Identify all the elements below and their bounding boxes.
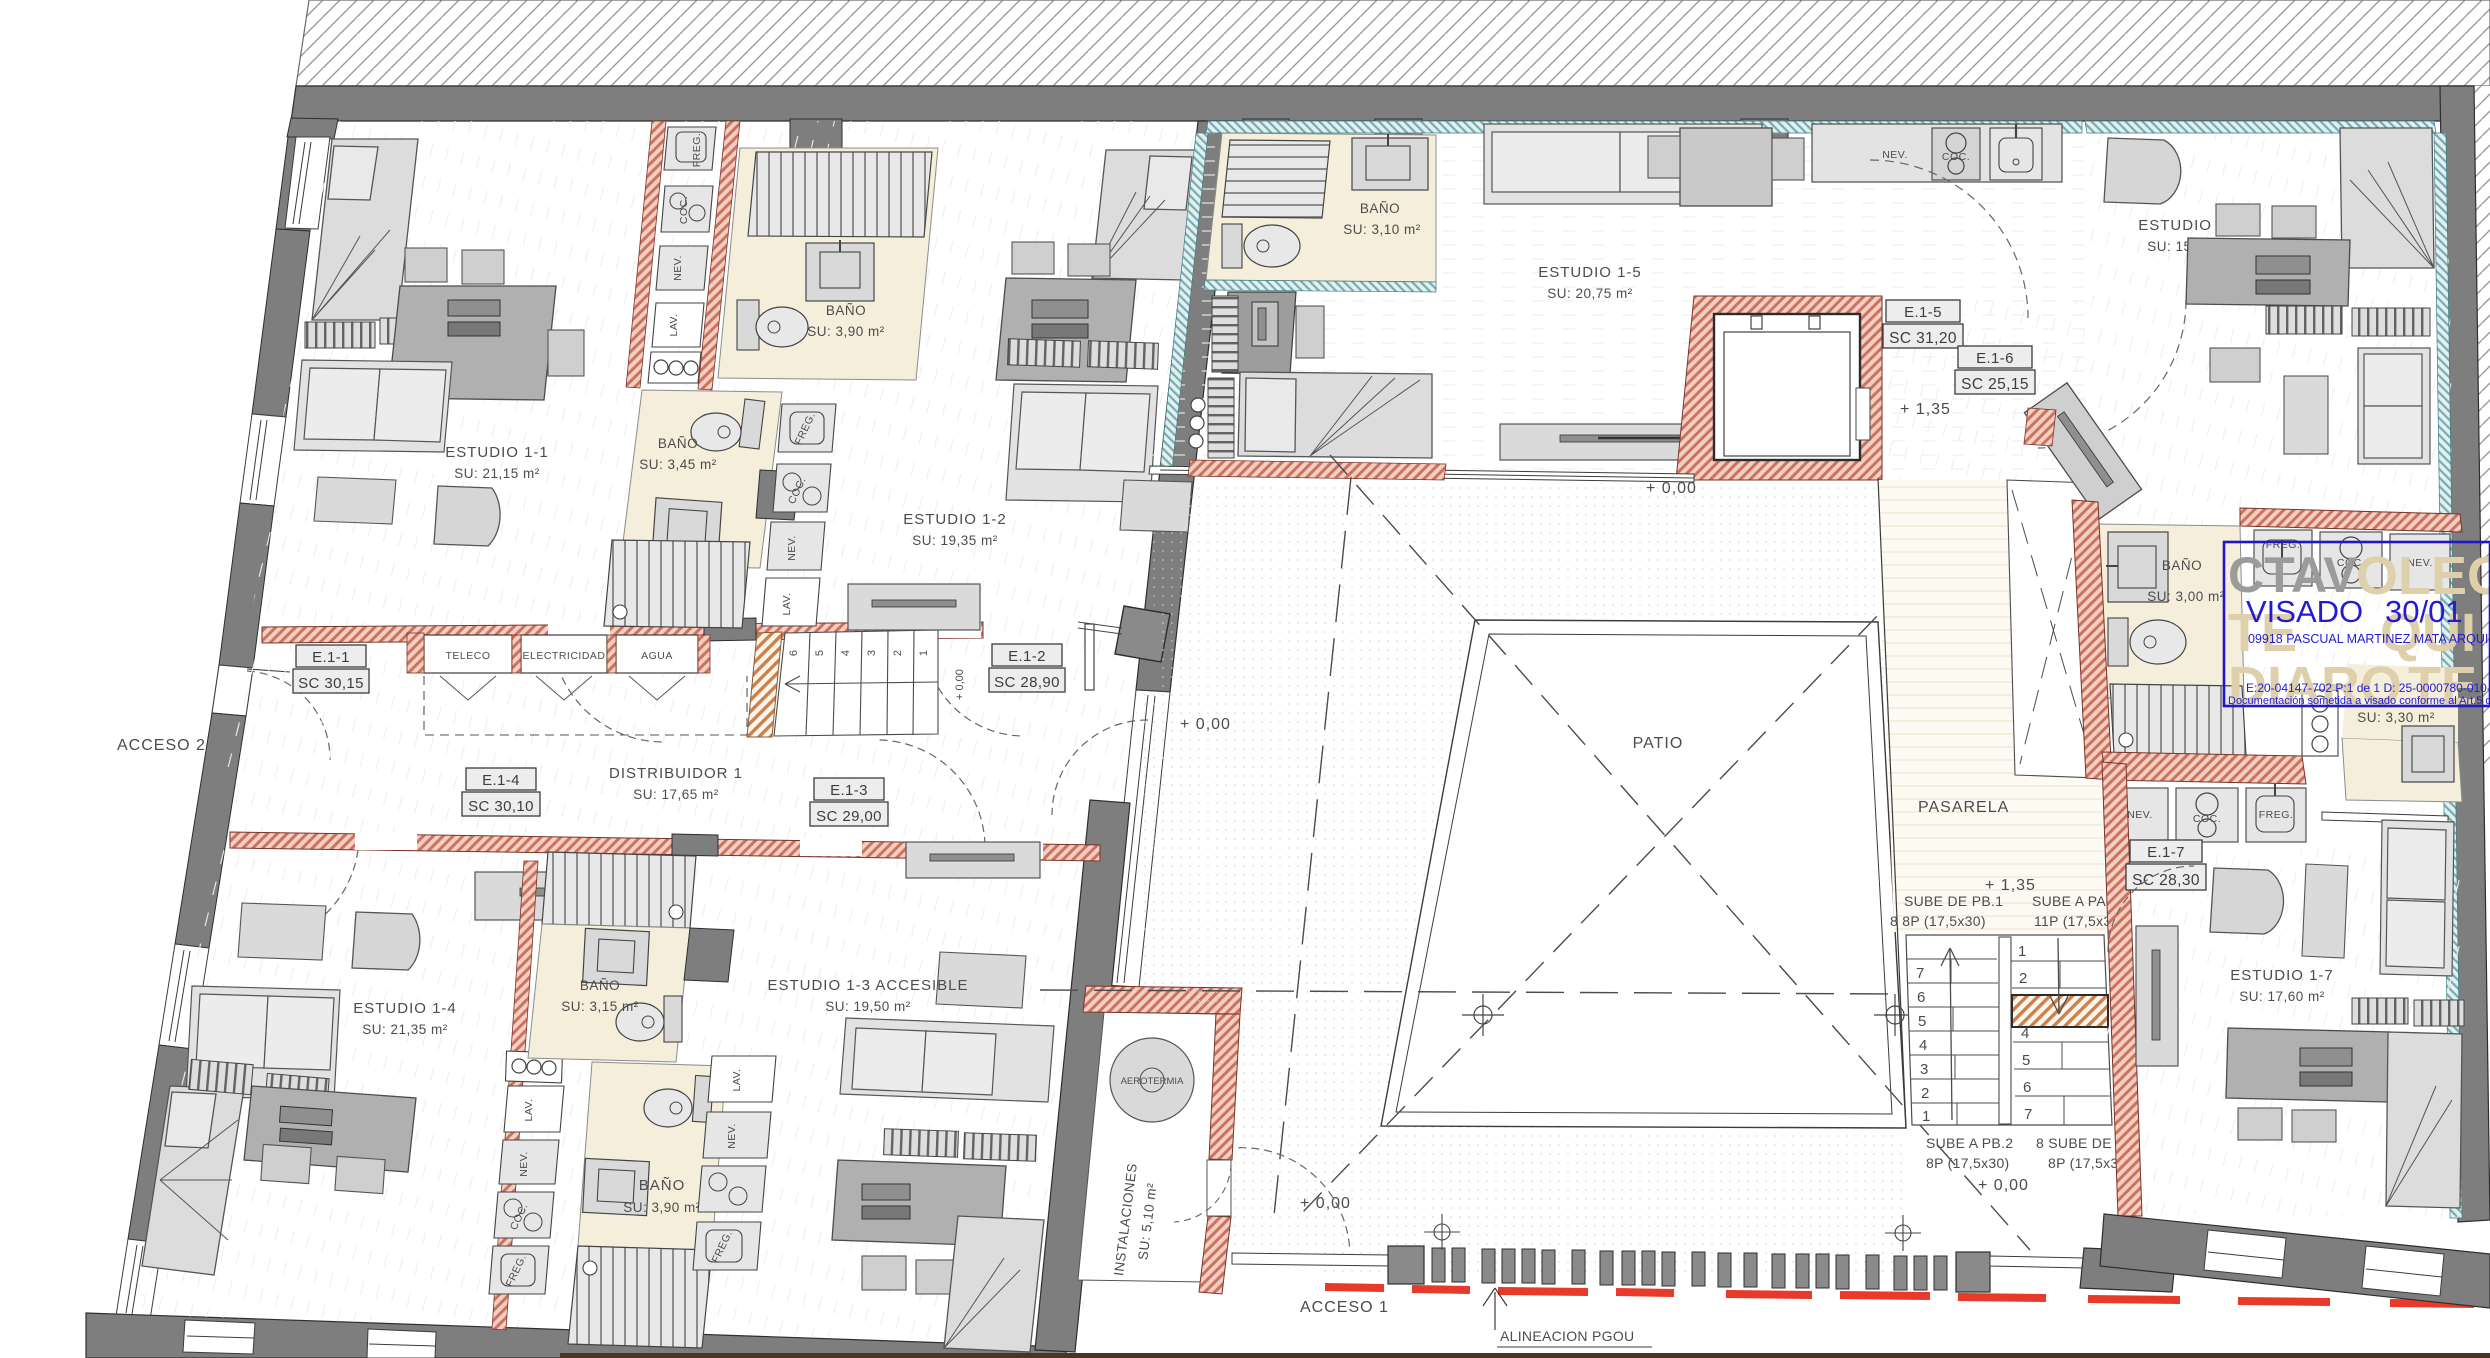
svg-text:SU: 17,60 m²: SU: 17,60 m² — [2239, 989, 2325, 1004]
svg-text:FREG.: FREG. — [2259, 809, 2294, 821]
svg-text:6: 6 — [788, 650, 800, 656]
svg-text:NEV.: NEV. — [786, 535, 798, 561]
svg-text:COC.: COC. — [678, 196, 690, 224]
svg-text:+ 0,00: + 0,00 — [1978, 1177, 2029, 1194]
svg-text:SU: 19,35 m²: SU: 19,35 m² — [912, 533, 998, 548]
svg-text:+ 1,35: + 1,35 — [1900, 401, 1951, 418]
svg-text:E.1-7: E.1-7 — [2147, 844, 2185, 861]
svg-text:3: 3 — [1920, 1061, 1928, 1078]
svg-text:SU: 3,00 m²: SU: 3,00 m² — [2147, 589, 2225, 604]
svg-text:E:20-04147-702 P:1 de 1: E:20-04147-702 P:1 de 1 D: 25-0000780-01… — [2246, 681, 2490, 695]
svg-text:SU: 21,35 m²: SU: 21,35 m² — [362, 1022, 448, 1037]
svg-text:SU: 17,65 m²: SU: 17,65 m² — [633, 787, 719, 802]
svg-text:ACCESO 2: ACCESO 2 — [117, 737, 206, 754]
svg-text:NEV.: NEV. — [1882, 149, 1908, 161]
svg-text:E.1-1: E.1-1 — [312, 649, 350, 666]
svg-text:7: 7 — [2024, 1106, 2032, 1123]
svg-text:TELECO: TELECO — [445, 650, 490, 662]
svg-text:30/01: 30/01 — [2385, 594, 2463, 629]
svg-text:ESTUDIO 1-2: ESTUDIO 1-2 — [903, 511, 1007, 528]
svg-text:VISADO: VISADO — [2246, 594, 2363, 629]
svg-text:2: 2 — [1921, 1085, 1929, 1102]
svg-text:SU: 3,30 m²: SU: 3,30 m² — [2357, 710, 2435, 725]
svg-text:ESTUDIO 1-4: ESTUDIO 1-4 — [353, 1000, 457, 1017]
svg-text:SC 29,00: SC 29,00 — [816, 808, 882, 825]
svg-text:SUBE DE PB.1: SUBE DE PB.1 — [1904, 893, 2003, 909]
svg-text:ESTUDIO 1-3 ACCESIBLE: ESTUDIO 1-3 ACCESIBLE — [767, 977, 968, 994]
svg-text:1: 1 — [1922, 1108, 1930, 1125]
svg-text:SC 28,90: SC 28,90 — [994, 674, 1060, 691]
svg-text:BAÑO: BAÑO — [639, 1177, 686, 1194]
svg-text:NEV.: NEV. — [2127, 809, 2153, 821]
svg-text:BAÑO: BAÑO — [826, 303, 866, 318]
svg-text:SU: 3,90 m²: SU: 3,90 m² — [807, 324, 885, 339]
svg-text:4: 4 — [840, 650, 852, 656]
svg-text:SC 25,15: SC 25,15 — [1961, 376, 2029, 393]
svg-text:BAÑO: BAÑO — [1360, 201, 1400, 216]
svg-text:AEROTERMIA: AEROTERMIA — [1121, 1076, 1184, 1087]
svg-text:ESTUDIO 1-5: ESTUDIO 1-5 — [1538, 264, 1642, 281]
svg-text:1: 1 — [2018, 943, 2026, 960]
svg-text:E.1-2: E.1-2 — [1008, 648, 1046, 665]
svg-text:3: 3 — [866, 650, 878, 656]
svg-text:E.1-6: E.1-6 — [1976, 350, 2014, 367]
svg-text:SC 28,30: SC 28,30 — [2132, 872, 2200, 889]
svg-text:SU: 3,45 m²: SU: 3,45 m² — [639, 457, 717, 472]
svg-text:SU: 19,50 m²: SU: 19,50 m² — [825, 999, 911, 1014]
svg-text:AGUA: AGUA — [641, 650, 673, 662]
svg-text:4: 4 — [1919, 1037, 1927, 1054]
svg-text:ALINEACION PGOU: ALINEACION PGOU — [1500, 1328, 1634, 1344]
svg-text:5: 5 — [2022, 1052, 2030, 1069]
svg-text:09918 PASCUAL MARTINEZ MATA A: 09918 PASCUAL MARTINEZ MATA ARQUITECT — [2248, 632, 2490, 646]
svg-text:ESTUDIO 1-1: ESTUDIO 1-1 — [445, 444, 549, 461]
svg-text:LAV.: LAV. — [781, 592, 793, 615]
svg-text:ELECTRICIDAD: ELECTRICIDAD — [522, 650, 605, 662]
svg-text:COC.: COC. — [1942, 151, 1970, 163]
svg-text:5: 5 — [814, 650, 826, 656]
svg-text:PASARELA: PASARELA — [1918, 799, 2009, 816]
svg-text:SC 30,15: SC 30,15 — [298, 675, 364, 692]
svg-text:FREG.: FREG. — [691, 133, 703, 168]
svg-text:6: 6 — [1917, 989, 1925, 1006]
svg-text:E.1-4: E.1-4 — [482, 772, 520, 789]
svg-text:BAÑO: BAÑO — [580, 978, 620, 993]
svg-text:7: 7 — [1916, 965, 1924, 982]
svg-text:ACCESO 1: ACCESO 1 — [1300, 1299, 1389, 1316]
svg-text:PATIO: PATIO — [1633, 735, 1684, 752]
svg-text:SU: 3,90 m²: SU: 3,90 m² — [623, 1200, 701, 1215]
svg-text:8P (17,5x30): 8P (17,5x30) — [1926, 1155, 2010, 1171]
svg-text:BAÑO: BAÑO — [2162, 558, 2202, 573]
svg-text:LAV.: LAV. — [523, 1098, 535, 1121]
svg-text:NEV.: NEV. — [518, 1151, 530, 1177]
svg-text:SU: 3,15 m²: SU: 3,15 m² — [561, 999, 639, 1014]
svg-text:SUBE A PB.2: SUBE A PB.2 — [1926, 1135, 2013, 1151]
svg-text:+ 0,00: + 0,00 — [1300, 1195, 1351, 1212]
svg-text:1: 1 — [918, 650, 930, 656]
svg-text:SC 30,10: SC 30,10 — [468, 798, 534, 815]
svg-text:NEV.: NEV. — [726, 1123, 738, 1149]
svg-text:BAÑO: BAÑO — [658, 436, 698, 451]
svg-text:SU: 3,10 m²: SU: 3,10 m² — [1343, 222, 1421, 237]
svg-text:+ 1,35: + 1,35 — [1985, 877, 2036, 894]
svg-text:NEV.: NEV. — [672, 255, 684, 281]
svg-text:E.1-3: E.1-3 — [830, 782, 868, 799]
svg-text:ESTUDIO 1-7: ESTUDIO 1-7 — [2230, 967, 2334, 984]
svg-text:COC.: COC. — [2193, 813, 2221, 825]
svg-text:SU: 20,75 m²: SU: 20,75 m² — [1547, 286, 1633, 301]
svg-text:2: 2 — [892, 650, 904, 656]
svg-text:SU: 21,15 m²: SU: 21,15 m² — [454, 466, 540, 481]
svg-text:LAV.: LAV. — [731, 1068, 743, 1091]
svg-text:E.1-5: E.1-5 — [1904, 304, 1942, 321]
svg-text:5: 5 — [1918, 1013, 1926, 1030]
svg-text:6: 6 — [2023, 1079, 2031, 1096]
svg-text:2: 2 — [2019, 970, 2027, 987]
svg-text:4: 4 — [2021, 1025, 2029, 1042]
svg-text:DISTRIBUIDOR 1: DISTRIBUIDOR 1 — [609, 765, 743, 782]
svg-text:Documentación sometida a visad: Documentación sometida a visado conforme… — [2228, 695, 2490, 707]
svg-text:+ 0,00: + 0,00 — [1646, 480, 1697, 497]
svg-text:+ 0,00: + 0,00 — [954, 669, 966, 700]
svg-text:SC 31,20: SC 31,20 — [1889, 330, 1957, 347]
svg-text:+ 0,00: + 0,00 — [1180, 716, 1231, 733]
svg-text:LAV.: LAV. — [668, 313, 680, 336]
svg-text:8 8P (17,5x30): 8 8P (17,5x30) — [1890, 913, 1986, 929]
